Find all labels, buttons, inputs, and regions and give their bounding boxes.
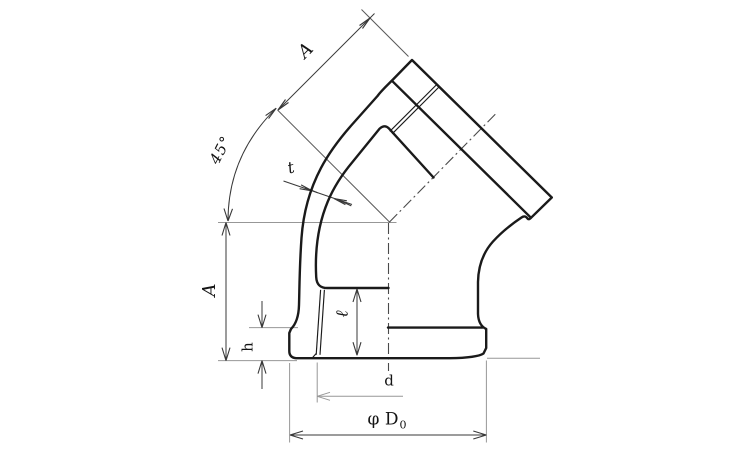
dim-label-outer-diameter-subscript: 0 (399, 419, 406, 432)
thread-line-top-inner (392, 87, 439, 134)
dimension-line-a-top (278, 14, 375, 111)
extension-line-face-top (362, 10, 409, 57)
dim-label-thread-length: ℓ (335, 310, 352, 317)
technical-drawing: A 45° t A h ℓ d φ D0 (0, 0, 750, 450)
chamfer-top (437, 85, 484, 131)
arrow-t-inner (334, 199, 351, 206)
thread-line-bottom-outer (316, 290, 320, 355)
dim-label-inner-diameter: d (384, 374, 394, 389)
drawing-canvas (0, 0, 750, 450)
oblique-extension-lines (278, 10, 409, 223)
band-edge-top-socket (392, 81, 531, 218)
thread-line-bottom-inner (320, 290, 324, 355)
dimension-arc-45deg (228, 108, 276, 221)
extension-line-axis-vertex (278, 110, 391, 223)
dim-label-outer-diameter-main: φ D (368, 410, 399, 430)
thread-line-top-outer (390, 85, 437, 132)
dim-label-band-height: h (241, 342, 256, 352)
arrow-t-outer (300, 185, 318, 193)
dim-label-length-left: A (201, 284, 219, 297)
centerlines (389, 113, 498, 372)
dim-label-outer-diameter: φ D0 (368, 412, 407, 431)
